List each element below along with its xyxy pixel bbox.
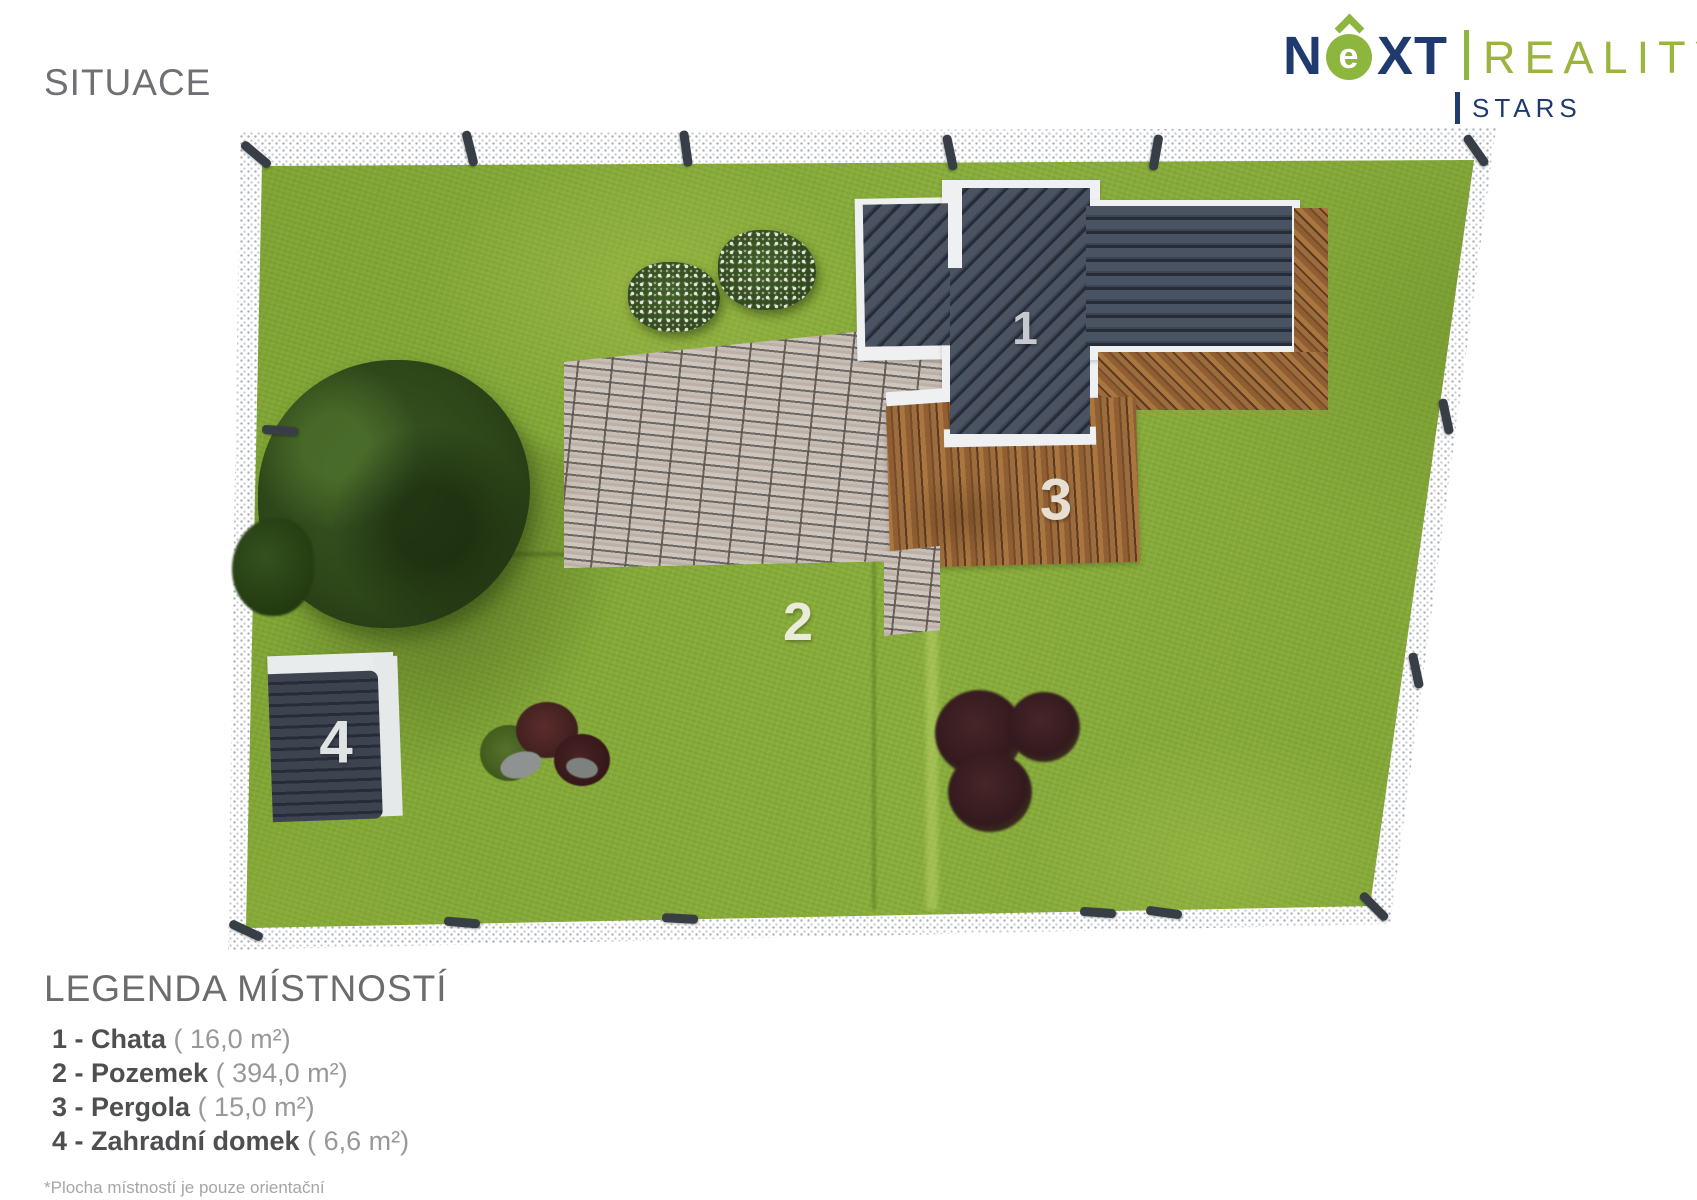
legend-item-area: ( 394,0 m²) — [216, 1058, 348, 1088]
legend-item-area: ( 15,0 m²) — [198, 1092, 315, 1122]
house-roof-right — [1086, 206, 1292, 346]
plant-cluster — [480, 700, 620, 800]
area-marker-chata: 1 — [1012, 301, 1038, 355]
legend: LEGENDA MÍSTNOSTÍ 1 - Chata ( 16,0 m²) 2… — [44, 968, 448, 1198]
grass-seam — [872, 562, 876, 910]
fence-post — [662, 913, 698, 924]
legend-item-area: ( 16,0 m²) — [174, 1024, 291, 1054]
legend-item-pergola: 3 - Pergola ( 15,0 m²) — [52, 1092, 448, 1122]
legend-item-pozemek: 2 - Pozemek ( 394,0 m²) — [52, 1058, 448, 1088]
legend-heading: LEGENDA MÍSTNOSTÍ — [44, 968, 448, 1010]
ornamental-grass — [1008, 692, 1080, 762]
house-roof-left — [863, 203, 951, 346]
bush — [232, 518, 314, 616]
area-marker-pergola: 3 — [1040, 467, 1072, 534]
area-marker-pozemek: 2 — [783, 591, 813, 653]
legend-item-zahradni-domek: 4 - Zahradní domek ( 6,6 m²) — [52, 1126, 448, 1156]
flower-bush — [718, 230, 816, 310]
legend-item-area: ( 6,6 m²) — [307, 1126, 409, 1156]
ornamental-grass — [948, 752, 1032, 832]
legend-item-label: 2 - Pozemek — [52, 1058, 208, 1088]
legend-item-chata: 1 - Chata ( 16,0 m²) — [52, 1024, 448, 1054]
site-plan-page: SITUACE N e XT REALITY STARS — [0, 0, 1697, 1200]
grass-mowed-strip — [926, 592, 938, 910]
house-roof-step — [948, 188, 962, 268]
legend-item-label: 1 - Chata — [52, 1024, 166, 1054]
legend-item-label: 4 - Zahradní domek — [52, 1126, 300, 1156]
flower-bush — [628, 262, 720, 332]
area-marker-zahradni-domek: 4 — [319, 708, 352, 777]
legend-item-label: 3 - Pergola — [52, 1092, 190, 1122]
legend-footnote: *Plocha místností je pouze orientační — [44, 1178, 448, 1198]
